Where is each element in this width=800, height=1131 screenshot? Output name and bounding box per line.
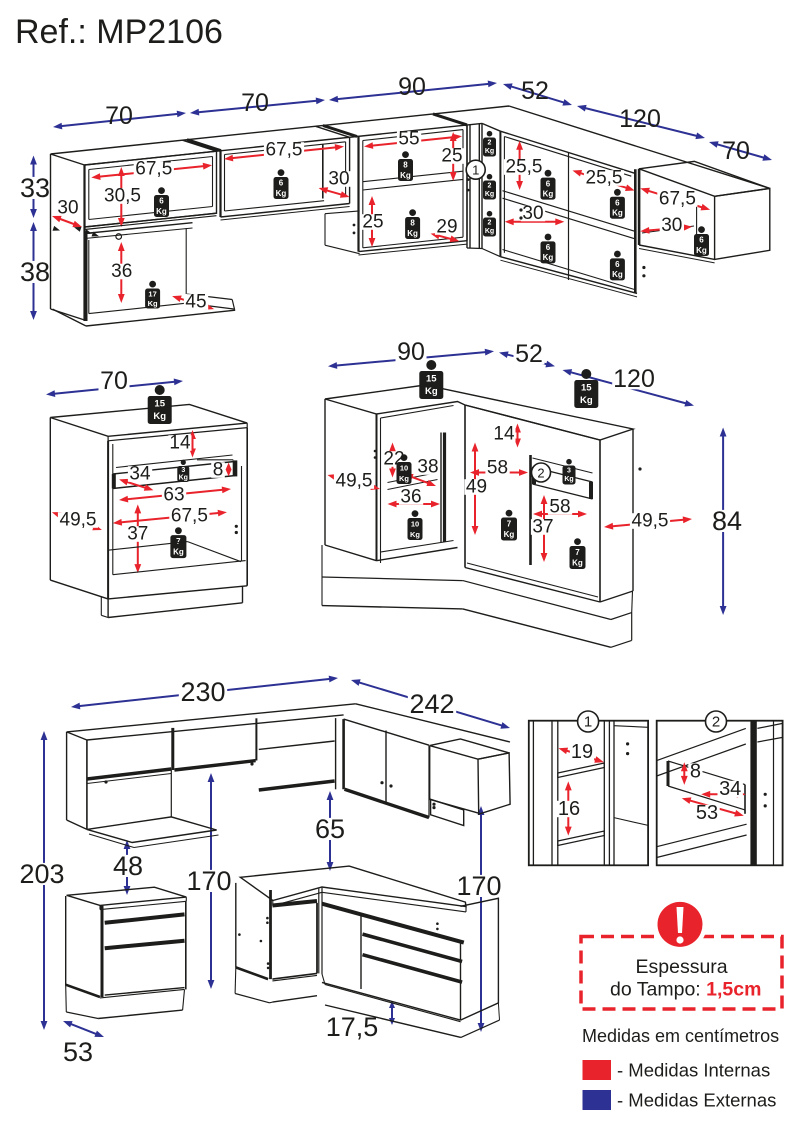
svg-text:37: 37	[532, 517, 553, 538]
svg-text:Kg: Kg	[179, 474, 188, 481]
svg-text:84: 84	[712, 506, 742, 536]
svg-text:30: 30	[328, 169, 349, 190]
svg-text:30: 30	[522, 203, 543, 224]
svg-text:6: 6	[546, 243, 551, 252]
svg-text:55: 55	[398, 129, 419, 150]
svg-text:230: 230	[180, 677, 225, 707]
svg-text:6: 6	[546, 179, 551, 188]
svg-text:2: 2	[537, 466, 544, 481]
svg-text:38: 38	[417, 457, 438, 478]
svg-text:do Tampo: 1,5cm: do Tampo: 1,5cm	[610, 979, 761, 1001]
svg-text:120: 120	[619, 105, 661, 133]
svg-text:6: 6	[279, 179, 284, 188]
svg-text:70: 70	[105, 102, 133, 130]
svg-text:10: 10	[411, 520, 419, 529]
svg-text:Kg: Kg	[485, 191, 494, 198]
svg-text:120: 120	[613, 365, 655, 393]
svg-text:203: 203	[19, 859, 64, 889]
svg-text:14: 14	[493, 424, 515, 445]
svg-text:Kg: Kg	[156, 207, 167, 216]
svg-text:Kg: Kg	[543, 253, 554, 262]
svg-text:30: 30	[57, 198, 78, 219]
svg-text:Kg: Kg	[399, 474, 409, 483]
svg-text:36: 36	[111, 261, 132, 282]
svg-text:2: 2	[488, 219, 492, 226]
svg-text:Kg: Kg	[543, 189, 554, 198]
svg-text:Kg: Kg	[407, 229, 418, 238]
svg-text:10: 10	[400, 464, 408, 473]
svg-text:70: 70	[241, 89, 269, 117]
svg-text:1: 1	[584, 714, 592, 731]
svg-text:Kg: Kg	[173, 548, 184, 557]
svg-text:Kg: Kg	[276, 189, 287, 198]
svg-text:67,5: 67,5	[135, 159, 172, 180]
svg-text:53: 53	[63, 1037, 93, 1067]
svg-text:1: 1	[472, 163, 479, 178]
svg-text:67,5: 67,5	[266, 140, 303, 161]
svg-text:30: 30	[661, 215, 682, 236]
svg-text:53: 53	[696, 802, 718, 824]
svg-text:52: 52	[521, 77, 549, 105]
svg-text:36: 36	[400, 487, 421, 508]
svg-text:Kg: Kg	[696, 246, 707, 255]
svg-text:58: 58	[487, 458, 508, 479]
svg-text:8: 8	[213, 460, 224, 481]
svg-text:67,5: 67,5	[171, 506, 208, 527]
svg-text:3: 3	[181, 467, 185, 474]
svg-text:63: 63	[163, 485, 184, 506]
svg-text:38: 38	[20, 257, 50, 287]
svg-text:Ref.: MP2106: Ref.: MP2106	[15, 13, 223, 51]
svg-text:37: 37	[127, 524, 148, 545]
svg-text:Kg: Kg	[410, 530, 420, 539]
svg-text:Kg: Kg	[564, 476, 573, 483]
svg-text:- Medidas Externas: - Medidas Externas	[617, 1090, 776, 1111]
svg-text:49,5: 49,5	[60, 510, 97, 531]
svg-text:Kg: Kg	[504, 530, 515, 539]
svg-text:25: 25	[362, 212, 383, 233]
svg-text:2: 2	[488, 139, 492, 146]
svg-text:25,5: 25,5	[506, 157, 543, 178]
svg-text:25,5: 25,5	[586, 168, 623, 189]
svg-text:45: 45	[185, 292, 206, 313]
svg-text:49,5: 49,5	[336, 471, 373, 492]
svg-text:242: 242	[409, 689, 454, 719]
svg-text:Kg: Kg	[485, 148, 494, 155]
svg-text:49: 49	[466, 477, 487, 498]
svg-text:90: 90	[398, 73, 426, 101]
svg-text:16: 16	[558, 798, 580, 820]
svg-text:34: 34	[129, 464, 151, 485]
svg-text:Kg: Kg	[148, 299, 158, 308]
svg-text:6: 6	[615, 198, 620, 207]
svg-text:34: 34	[719, 778, 741, 800]
svg-text:Kg: Kg	[153, 411, 166, 422]
svg-text:15: 15	[426, 373, 437, 384]
svg-text:25: 25	[441, 146, 462, 167]
svg-text:7: 7	[507, 519, 512, 528]
svg-text:58: 58	[549, 497, 570, 518]
svg-text:70: 70	[100, 367, 128, 395]
svg-text:170: 170	[186, 866, 231, 896]
svg-text:2: 2	[712, 714, 720, 731]
svg-text:33: 33	[20, 173, 50, 203]
svg-text:6: 6	[615, 260, 620, 269]
svg-text:Kg: Kg	[612, 270, 623, 279]
svg-text:90: 90	[397, 338, 425, 366]
svg-text:Kg: Kg	[580, 395, 593, 406]
svg-text:Kg: Kg	[400, 171, 411, 180]
svg-text:70: 70	[722, 137, 750, 165]
svg-text:29: 29	[436, 217, 457, 238]
svg-text:8: 8	[690, 761, 701, 783]
svg-text:6: 6	[699, 236, 704, 245]
svg-text:7: 7	[575, 548, 580, 557]
svg-text:52: 52	[515, 340, 543, 368]
svg-text:7: 7	[176, 537, 181, 546]
svg-text:8: 8	[403, 161, 408, 170]
svg-text:6: 6	[159, 197, 164, 206]
svg-text:19: 19	[571, 741, 593, 763]
svg-text:2: 2	[488, 182, 492, 189]
svg-text:48: 48	[113, 851, 143, 881]
svg-text:Medidas em centímetros: Medidas em centímetros	[582, 1026, 779, 1046]
svg-text:Kg: Kg	[572, 559, 583, 568]
svg-text:- Medidas Internas: - Medidas Internas	[617, 1060, 770, 1081]
svg-text:Espessura: Espessura	[636, 956, 728, 978]
svg-text:170: 170	[456, 871, 501, 901]
svg-text:49,5: 49,5	[632, 511, 669, 532]
svg-text:15: 15	[581, 382, 592, 393]
svg-text:3: 3	[567, 467, 571, 474]
svg-text:14: 14	[169, 433, 191, 454]
svg-text:67,5: 67,5	[659, 189, 696, 210]
svg-text:Kg: Kg	[612, 209, 623, 218]
svg-text:17: 17	[148, 290, 156, 299]
svg-text:8: 8	[410, 219, 415, 228]
svg-text:65: 65	[315, 814, 345, 844]
svg-text:30,5: 30,5	[104, 186, 141, 207]
svg-text:Kg: Kg	[485, 228, 494, 235]
